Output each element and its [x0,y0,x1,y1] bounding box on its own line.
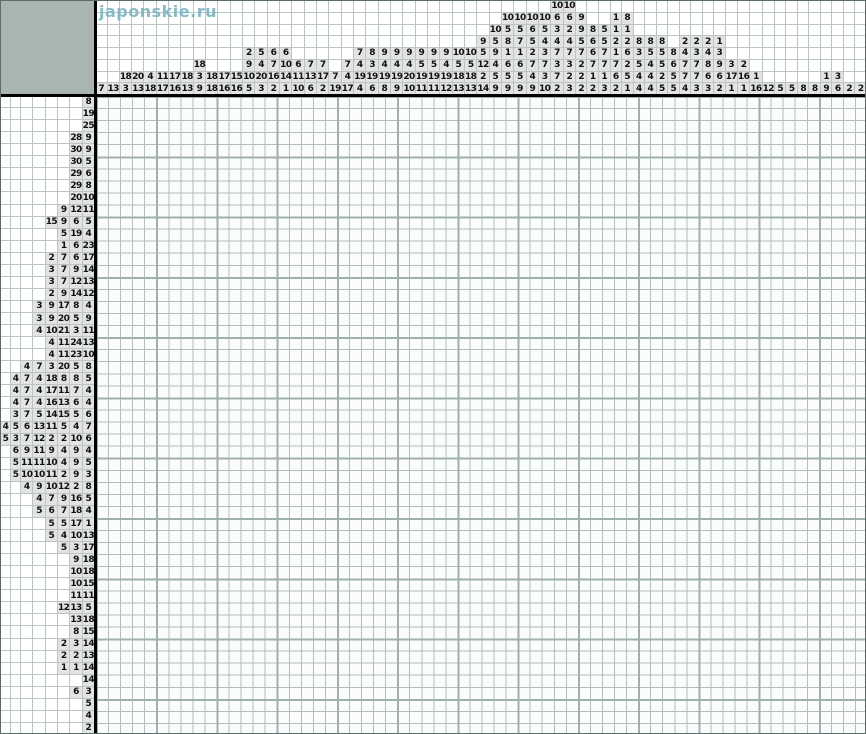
column-clue-number[interactable]: 19 [354,72,366,84]
row-clue-number[interactable]: 8 [70,301,82,313]
column-clue-number[interactable]: 7 [564,48,576,60]
column-clue-number[interactable]: 6 [587,48,599,60]
row-clue-number[interactable]: 9 [46,301,58,313]
column-clue-number[interactable]: 6 [703,72,715,84]
column-clue-number[interactable]: 8 [657,36,669,48]
column-clue-number[interactable]: 4 [680,48,692,60]
column-clue-number[interactable]: 4 [645,72,657,84]
row-clue-number[interactable]: 8 [70,373,82,385]
row-clue-number[interactable]: 6 [70,687,82,699]
column-clue-number[interactable]: 10 [539,13,551,25]
column-clue-number[interactable]: 2 [680,36,692,48]
column-clue-number[interactable]: 18 [465,72,477,84]
row-clue-number[interactable]: 6 [70,217,82,229]
column-clue-number[interactable]: 5 [599,25,611,37]
row-clue-number[interactable]: 10 [21,470,33,482]
column-clue-number[interactable]: 3 [634,48,646,60]
column-clue-number[interactable]: 10 [243,72,255,84]
row-clue-number[interactable]: 16 [70,494,82,506]
row-clue-number[interactable]: 10 [70,434,82,446]
column-clue-number[interactable]: 10 [527,13,539,25]
row-clue-number[interactable]: 5 [33,506,45,518]
row-clue-number[interactable]: 2 [58,470,70,482]
row-clue-number[interactable]: 14 [70,289,82,301]
row-clue-number[interactable]: 5 [70,313,82,325]
row-clue-number[interactable]: 1 [70,663,82,675]
column-clue-number[interactable]: 4 [645,60,657,72]
column-clue-number[interactable]: 5 [576,36,588,48]
row-clue-number[interactable]: 2 [58,434,70,446]
column-clue-number[interactable]: 1 [622,25,634,37]
column-clue-number[interactable]: 7 [680,60,692,72]
row-clue-number[interactable]: 30 [70,144,82,156]
column-clue-number[interactable]: 9 [403,48,415,60]
row-clue-number[interactable]: 7 [21,373,33,385]
column-clue-number[interactable]: 3 [726,60,738,72]
column-clue-number[interactable]: 9 [428,48,440,60]
column-clue-number[interactable]: 7 [680,72,692,84]
column-clue-number[interactable]: 17 [726,72,738,84]
column-clue-number[interactable]: 4 [564,36,576,48]
row-clue-number[interactable]: 5 [58,518,70,530]
column-clue-number[interactable]: 6 [564,13,576,25]
column-clue-number[interactable]: 13 [305,72,317,84]
column-clue-number[interactable]: 6 [622,48,634,60]
row-clue-number[interactable]: 3 [46,361,58,373]
column-clue-number[interactable]: 10 [490,25,502,37]
row-clue-number[interactable]: 10 [46,482,58,494]
row-clue-number[interactable]: 6 [46,506,58,518]
column-clue-number[interactable]: 2 [564,25,576,37]
column-clue-number[interactable]: 17 [218,72,230,84]
row-clue-number[interactable]: 20 [58,313,70,325]
column-clue-number[interactable]: 12 [477,60,489,72]
row-clue-number[interactable]: 12 [33,434,45,446]
column-clue-number[interactable]: 2 [622,60,634,72]
column-clue-number[interactable]: 16 [738,72,750,84]
column-clue-number[interactable]: 2 [527,48,539,60]
column-clue-number[interactable]: 9 [243,60,255,72]
column-clue-number[interactable]: 7 [599,48,611,60]
row-clue-number[interactable]: 5 [58,542,70,554]
row-clue-number[interactable]: 5 [46,518,58,530]
column-clue-number[interactable]: 5 [428,60,440,72]
column-clue-number[interactable]: 1 [611,25,623,37]
column-clue-number[interactable]: 5 [465,60,477,72]
column-clue-number[interactable]: 1 [587,72,599,84]
row-clue-number[interactable]: 4 [58,458,70,470]
row-clue-number[interactable]: 10 [70,566,82,578]
column-clue-number[interactable]: 9 [477,36,489,48]
row-clue-number[interactable]: 4 [11,385,21,397]
row-clue-number[interactable]: 9 [21,446,33,458]
column-clue-number[interactable]: 7 [551,72,563,84]
column-clue-number[interactable]: 2 [576,72,588,84]
column-clue-number[interactable]: 10 [514,13,526,25]
row-clue-number[interactable]: 5 [58,422,70,434]
column-clue-number[interactable]: 2 [564,72,576,84]
row-clue-number[interactable]: 5 [70,409,82,421]
column-clue-number[interactable]: 3 [714,48,726,60]
column-clue-number[interactable]: 3 [551,25,563,37]
row-clue-number[interactable]: 11 [46,422,58,434]
column-clue-number[interactable]: 1 [599,72,611,84]
column-clue-number[interactable]: 5 [502,72,514,84]
column-clue-number[interactable]: 7 [551,48,563,60]
column-clue-number[interactable]: 8 [703,60,715,72]
row-clue-number[interactable]: 13 [70,614,82,626]
column-clue-number[interactable]: 6 [514,60,526,72]
column-clue-number[interactable]: 9 [391,48,403,60]
column-clue-number[interactable]: 3 [832,72,844,84]
row-clue-number[interactable]: 2 [46,289,58,301]
column-clue-number[interactable]: 17 [169,72,181,84]
column-clue-number[interactable]: 4 [354,60,366,72]
column-clue-number[interactable]: 8 [622,13,634,25]
column-clue-number[interactable]: 19 [366,72,378,84]
row-clue-number[interactable]: 10 [70,530,82,542]
column-clue-number[interactable]: 1 [750,72,762,84]
row-clue-number[interactable]: 17 [70,518,82,530]
row-clue-number[interactable]: 8 [58,373,70,385]
row-clue-number[interactable]: 29 [70,180,82,192]
column-clue-number[interactable]: 14 [280,72,292,84]
row-clue-number[interactable]: 17 [58,301,70,313]
row-clue-number[interactable]: 5 [11,470,21,482]
column-clue-number[interactable]: 5 [255,48,267,60]
column-clue-number[interactable]: 18 [194,60,206,72]
row-clue-number[interactable]: 4 [46,337,58,349]
column-clue-number[interactable]: 3 [366,60,378,72]
column-clue-number[interactable]: 7 [317,60,329,72]
row-clue-number[interactable]: 9 [58,205,70,217]
column-clue-number[interactable]: 4 [255,60,267,72]
row-clue-number[interactable]: 10 [33,470,45,482]
row-clue-number[interactable]: 10 [46,458,58,470]
row-clue-number[interactable]: 15 [58,409,70,421]
row-clue-number[interactable]: 20 [58,361,70,373]
column-clue-number[interactable]: 5 [657,60,669,72]
row-clue-number[interactable]: 6 [70,241,82,253]
row-clue-number[interactable]: 3 [11,434,21,446]
column-clue-number[interactable]: 6 [587,36,599,48]
row-clue-number[interactable]: 9 [46,446,58,458]
column-clue-number[interactable]: 4 [490,60,502,72]
row-clue-number[interactable]: 7 [58,253,70,265]
column-clue-number[interactable]: 4 [440,60,452,72]
column-clue-number[interactable]: 19 [379,72,391,84]
row-clue-number[interactable]: 5 [70,361,82,373]
column-clue-number[interactable]: 6 [527,25,539,37]
row-clue-number[interactable]: 4 [11,397,21,409]
row-clue-number[interactable]: 18 [46,373,58,385]
column-clue-number[interactable]: 10 [280,60,292,72]
row-clue-number[interactable]: 4 [33,373,45,385]
row-clue-number[interactable]: 6 [21,422,33,434]
row-clue-number[interactable]: 11 [33,446,45,458]
row-clue-number[interactable]: 12 [70,277,82,289]
column-clue-number[interactable]: 7 [576,48,588,60]
column-clue-number[interactable]: 4 [391,60,403,72]
column-clue-number[interactable]: 20 [132,72,144,84]
row-clue-number[interactable]: 6 [70,397,82,409]
column-clue-number[interactable]: 4 [634,72,646,84]
row-clue-number[interactable]: 9 [46,313,58,325]
column-clue-number[interactable]: 3 [551,60,563,72]
column-clue-number[interactable]: 8 [502,36,514,48]
row-clue-number[interactable]: 7 [58,506,70,518]
row-clue-number[interactable]: 7 [21,409,33,421]
row-clue-number[interactable]: 21 [58,325,70,337]
row-clue-number[interactable]: 28 [70,132,82,144]
column-clue-number[interactable]: 20 [403,72,415,84]
row-clue-number[interactable]: 6 [70,253,82,265]
row-clue-number[interactable]: 29 [70,168,82,180]
row-clue-number[interactable]: 7 [21,434,33,446]
column-clue-number[interactable]: 10 [465,48,477,60]
row-clue-number[interactable]: 5 [46,530,58,542]
column-clue-number[interactable]: 4 [551,36,563,48]
column-clue-number[interactable]: 5 [668,72,680,84]
column-clue-number[interactable]: 5 [416,60,428,72]
row-clue-number[interactable]: 10 [70,578,82,590]
row-clue-number[interactable]: 20 [70,192,82,204]
column-clue-number[interactable]: 4 [342,72,354,84]
row-clue-number[interactable]: 10 [46,325,58,337]
row-clue-number[interactable]: 11 [58,349,70,361]
column-clue-number[interactable]: 4 [703,48,715,60]
row-clue-number[interactable]: 13 [58,397,70,409]
column-clue-number[interactable]: 9 [490,48,502,60]
column-clue-number[interactable]: 3 [539,48,551,60]
column-clue-number[interactable]: 2 [703,36,715,48]
column-clue-number[interactable]: 18 [120,72,132,84]
row-clue-number[interactable]: 14 [46,409,58,421]
column-clue-number[interactable]: 6 [668,60,680,72]
column-clue-number[interactable]: 4 [144,72,156,84]
column-clue-number[interactable]: 11 [292,72,304,84]
column-clue-number[interactable]: 16 [268,72,280,84]
row-clue-number[interactable]: 4 [21,482,33,494]
column-clue-number[interactable]: 5 [657,48,669,60]
column-clue-number[interactable]: 8 [634,36,646,48]
row-clue-number[interactable]: 9 [33,482,45,494]
puzzle-board[interactable] [96,96,866,734]
row-clue-number[interactable]: 5 [11,458,21,470]
row-clue-number[interactable]: 7 [58,265,70,277]
column-clue-number[interactable]: 19 [428,72,440,84]
column-clue-number[interactable]: 9 [714,60,726,72]
row-clue-number[interactable]: 7 [21,397,33,409]
row-clue-number[interactable]: 7 [33,361,45,373]
row-clue-number[interactable]: 3 [46,277,58,289]
column-clue-number[interactable]: 9 [416,48,428,60]
row-clue-number[interactable]: 2 [46,253,58,265]
row-clue-number[interactable]: 8 [70,626,82,638]
column-clue-number[interactable]: 15 [231,72,243,84]
row-clue-number[interactable]: 2 [70,482,82,494]
column-clue-number[interactable]: 7 [329,72,341,84]
row-clue-number[interactable]: 5 [33,409,45,421]
column-clue-number[interactable]: 3 [691,48,703,60]
column-clue-number[interactable]: 7 [354,48,366,60]
row-clue-number[interactable]: 4 [58,530,70,542]
row-clue-number[interactable]: 5 [1,434,11,446]
column-clue-number[interactable]: 5 [599,36,611,48]
column-clue-number[interactable]: 5 [502,25,514,37]
row-clue-number[interactable]: 13 [70,602,82,614]
column-clue-number[interactable]: 3 [539,72,551,84]
row-clue-number[interactable]: 4 [11,373,21,385]
column-clue-number[interactable]: 11 [157,72,169,84]
column-clue-number[interactable]: 1 [714,36,726,48]
row-clue-number[interactable]: 4 [46,349,58,361]
column-clue-number[interactable]: 19 [391,72,403,84]
row-clue-number[interactable]: 9 [58,289,70,301]
column-clue-number[interactable]: 1 [821,72,833,84]
column-clue-number[interactable]: 6 [292,60,304,72]
column-clue-number[interactable]: 2 [611,36,623,48]
column-clue-number[interactable]: 7 [305,60,317,72]
row-clue-number[interactable]: 24 [70,337,82,349]
column-clue-number[interactable]: 2 [657,72,669,84]
column-clue-number[interactable]: 3 [564,60,576,72]
column-clue-number[interactable]: 5 [622,72,634,84]
row-clue-number[interactable]: 11 [70,590,82,602]
column-clue-number[interactable]: 20 [255,72,267,84]
column-clue-number[interactable]: 6 [551,13,563,25]
column-clue-number[interactable]: 9 [576,25,588,37]
row-clue-number[interactable]: 7 [21,385,33,397]
row-clue-number[interactable]: 13 [33,422,45,434]
column-clue-number[interactable]: 7 [599,60,611,72]
row-clue-number[interactable]: 3 [46,265,58,277]
row-clue-number[interactable]: 9 [70,265,82,277]
row-clue-number[interactable]: 30 [70,156,82,168]
column-clue-number[interactable]: 5 [477,48,489,60]
row-clue-number[interactable]: 3 [70,325,82,337]
row-clue-number[interactable]: 9 [70,458,82,470]
column-clue-number[interactable]: 19 [416,72,428,84]
row-clue-number[interactable]: 4 [58,446,70,458]
column-clue-number[interactable]: 7 [342,60,354,72]
column-clue-number[interactable]: 8 [366,48,378,60]
row-clue-number[interactable]: 4 [70,422,82,434]
row-clue-number[interactable]: 2 [46,434,58,446]
row-clue-number[interactable]: 17 [46,385,58,397]
column-clue-number[interactable]: 7 [691,60,703,72]
column-clue-number[interactable]: 8 [587,25,599,37]
column-clue-number[interactable]: 4 [403,60,415,72]
row-clue-number[interactable]: 9 [58,217,70,229]
row-clue-number[interactable]: 3 [11,409,21,421]
row-clue-number[interactable]: 2 [58,651,70,663]
row-clue-number[interactable]: 9 [70,470,82,482]
row-clue-number[interactable]: 4 [33,385,45,397]
column-clue-number[interactable]: 9 [379,48,391,60]
column-clue-number[interactable]: 5 [527,36,539,48]
column-clue-number[interactable]: 1 [611,48,623,60]
row-clue-number[interactable]: 19 [70,229,82,241]
column-clue-number[interactable]: 7 [691,72,703,84]
column-clue-number[interactable]: 5 [645,48,657,60]
column-clue-number[interactable]: 7 [527,60,539,72]
column-clue-number[interactable]: 5 [490,36,502,48]
column-clue-number[interactable]: 6 [714,72,726,84]
column-clue-number[interactable]: 9 [576,13,588,25]
column-clue-number[interactable]: 5 [634,60,646,72]
column-clue-number[interactable]: 5 [514,25,526,37]
column-clue-number[interactable]: 7 [611,60,623,72]
column-clue-number[interactable]: 18 [206,72,218,84]
column-clue-number[interactable]: 2 [243,48,255,60]
column-clue-number[interactable]: 2 [738,60,750,72]
column-clue-number[interactable]: 4 [539,36,551,48]
column-clue-number[interactable]: 5 [490,72,502,84]
column-clue-number[interactable]: 10 [502,13,514,25]
row-clue-number[interactable]: 12 [70,205,82,217]
column-clue-number[interactable]: 17 [317,72,329,84]
column-clue-number[interactable]: 2 [576,60,588,72]
column-clue-number[interactable]: 19 [440,72,452,84]
row-clue-number[interactable]: 5 [58,229,70,241]
column-clue-number[interactable]: 2 [622,36,634,48]
column-clue-number[interactable]: 6 [502,60,514,72]
row-clue-number[interactable]: 4 [33,397,45,409]
column-clue-number[interactable]: 6 [611,72,623,84]
row-clue-number[interactable]: 3 [33,313,45,325]
row-clue-number[interactable]: 11 [58,385,70,397]
column-clue-number[interactable]: 6 [280,48,292,60]
row-clue-number[interactable]: 3 [70,542,82,554]
row-clue-number[interactable]: 9 [58,494,70,506]
row-clue-number[interactable]: 2 [70,651,82,663]
column-clue-number[interactable]: 18 [181,72,193,84]
row-clue-number[interactable]: 12 [58,482,70,494]
column-clue-number[interactable]: 4 [527,72,539,84]
column-clue-number[interactable]: 2 [477,72,489,84]
column-clue-number[interactable]: 9 [440,48,452,60]
row-clue-number[interactable]: 9 [70,446,82,458]
row-clue-number[interactable]: 7 [46,494,58,506]
column-clue-number[interactable]: 7 [268,60,280,72]
row-clue-number[interactable]: 1 [58,241,70,253]
row-clue-number[interactable]: 18 [70,506,82,518]
column-clue-number[interactable]: 1 [502,48,514,60]
row-clue-number[interactable]: 4 [21,361,33,373]
column-clue-number[interactable]: 7 [514,36,526,48]
column-clue-number[interactable]: 8 [668,48,680,60]
column-clue-number[interactable]: 7 [539,60,551,72]
row-clue-number[interactable]: 4 [33,325,45,337]
row-clue-number[interactable]: 3 [70,639,82,651]
column-clue-number[interactable]: 5 [539,25,551,37]
row-clue-number[interactable]: 15 [46,217,58,229]
column-clue-number[interactable]: 4 [379,60,391,72]
row-clue-number[interactable]: 4 [33,494,45,506]
row-clue-number[interactable]: 23 [70,349,82,361]
row-clue-number[interactable]: 7 [70,385,82,397]
column-clue-number[interactable]: 10 [453,48,465,60]
row-clue-number[interactable]: 5 [11,422,21,434]
column-clue-number[interactable]: 5 [514,72,526,84]
column-clue-number[interactable]: 1 [514,48,526,60]
column-clue-number[interactable]: 10 [551,1,563,13]
row-clue-number[interactable]: 12 [58,602,70,614]
column-clue-number[interactable]: 18 [453,72,465,84]
column-clue-number[interactable]: 8 [645,36,657,48]
row-clue-number[interactable]: 11 [21,458,33,470]
